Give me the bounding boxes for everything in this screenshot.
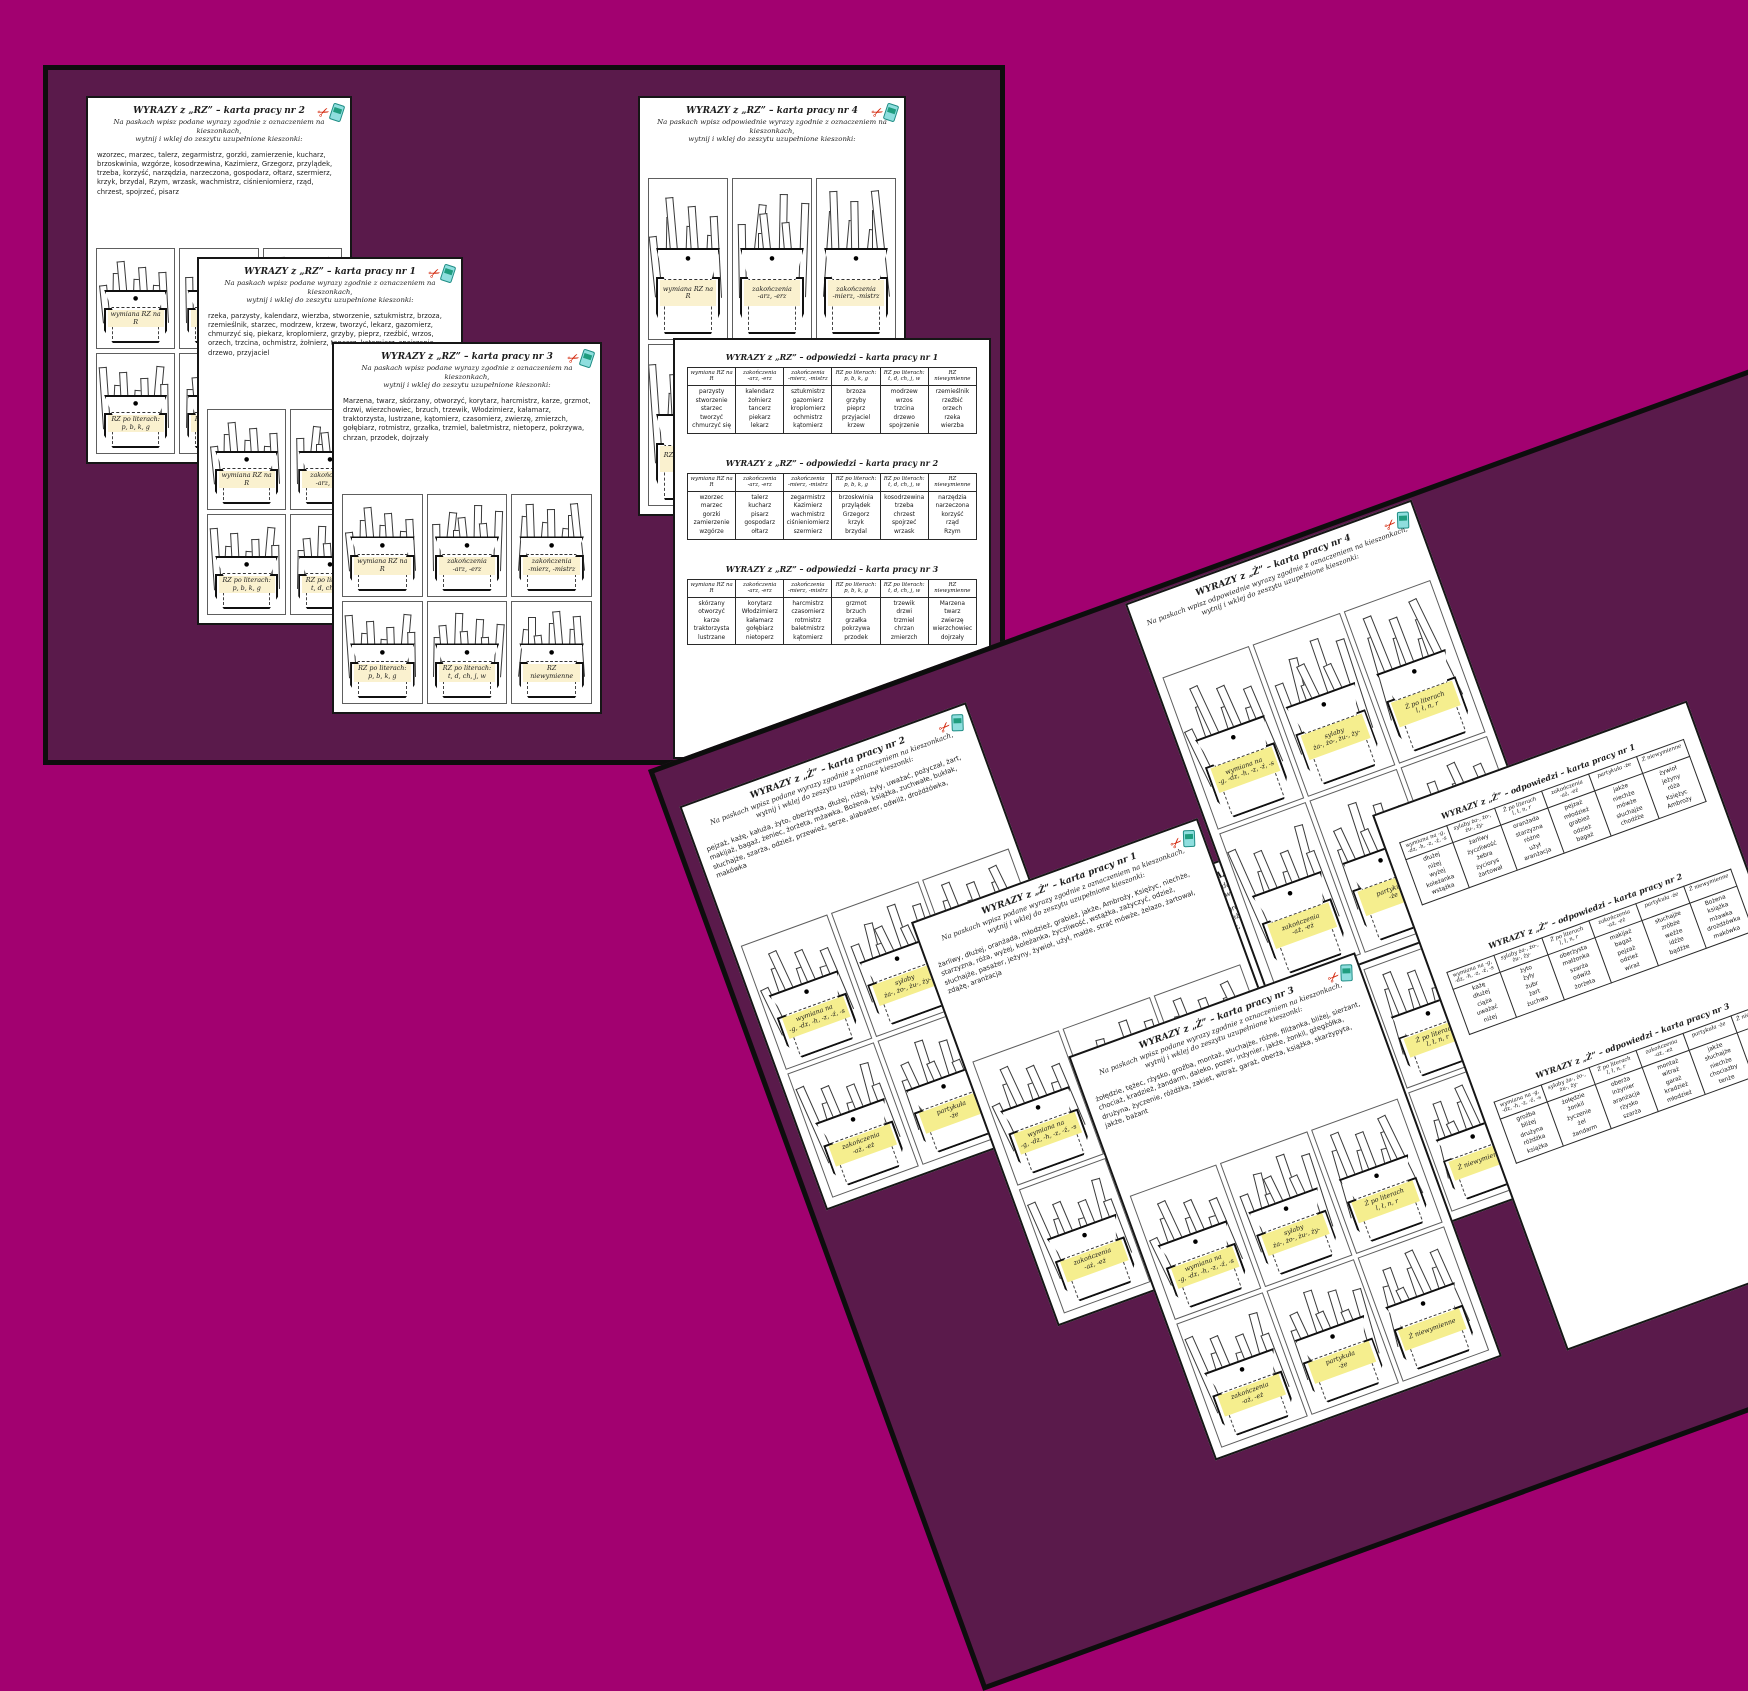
pocket-flap (824, 248, 888, 284)
pocket-flap (519, 643, 584, 666)
pocket: RZ niewymienne (519, 643, 584, 698)
pocket-label: RZ po literach: p, b, k, g (219, 576, 275, 593)
answers-table-wrap: wymiana RZ na Rzakończenia -arz, -erzzak… (687, 367, 977, 434)
worksheet-instructions: Na paskach wpisz podane wyrazy zgodnie z… (343, 364, 591, 390)
pocket-cell: wymiana RZ na R (648, 178, 728, 340)
pocket: zakończenia -arz, -erz (435, 536, 500, 591)
pocket: zakończenia -arz, -erz (740, 248, 804, 334)
pocket-label: RZ po literach: p, b, k, g (354, 664, 411, 681)
answers-col-header: RZ niewymienne (928, 579, 976, 597)
worksheet-instructions: Na paskach wpisz odpowiednie wyrazy zgod… (649, 118, 895, 144)
pocket-label: zakończenia -mierz, -mistrz (828, 280, 884, 306)
answers-col-values: parzysty stworzenie starzec tworzyć chmu… (688, 385, 736, 433)
answers-col-header: RZ po literach: t, d, ch, j, w (880, 579, 928, 597)
answers-col-values: harcmistrz czasomierz rotmistrz baletmis… (784, 597, 832, 645)
pocket-cell: wymiana RZ na R (96, 248, 175, 349)
pocket-flap (656, 248, 720, 284)
answers-col-header: wymiana RZ na R (688, 368, 736, 386)
answers-col-header: zakończenia -arz, -erz (736, 579, 784, 597)
answers-col-values: grzmot brzuch grzałka pokrzywa przodek (832, 597, 880, 645)
glue-icon (440, 264, 457, 284)
answers-col-header: RZ po literach: p, b, k, g (832, 473, 880, 491)
pocket-flap (519, 536, 584, 559)
scissors-glue-icon: ✂ (872, 103, 898, 125)
pocket-flap (435, 536, 500, 559)
pocket-cell: RZ po literach: t, d, ch, j, w (427, 601, 508, 704)
answers-col-values: kalendarz żołnierz tancerz piekarz lekar… (736, 385, 784, 433)
answers-col-values: korytarz Włodzimierz kałamarz gołębiarz … (736, 597, 784, 645)
answers-col-header: zakończenia -mierz, -mistrz (784, 368, 832, 386)
glue-icon (1340, 964, 1353, 981)
pocket-flap (740, 248, 804, 284)
answers-col-values: talerz kucharz pisarz gospodarz ołtarz (736, 491, 784, 539)
scissors-glue-icon: ✂ (429, 264, 455, 286)
answers-col-values: skórzany otworzyć karze traktorzysta lus… (688, 597, 736, 645)
answers-col-values: brzoza grzyby pieprz przyjaciel krzew (832, 385, 880, 433)
word-list: Marzena, twarz, skórzany, otworzyć, kory… (343, 397, 591, 443)
pocket: wymiana RZ na R (104, 290, 167, 343)
pocket-flap (350, 536, 415, 559)
pocket-flap (215, 451, 278, 473)
pocket-cell: RZ po literach: p, b, k, g (96, 353, 175, 454)
answers-col-header: RZ po literach: t, d, ch, j, w (880, 473, 928, 491)
pocket-cell: zakończenia -arz, -erz (427, 494, 508, 597)
pocket-label: wymiana RZ na R (108, 310, 164, 327)
answers-col-header: zakończenia -mierz, -mistrz (784, 579, 832, 597)
pocket-grid: wymiana RZ na Rzakończenia -arz, -erzzak… (342, 494, 592, 704)
glue-icon (329, 103, 346, 123)
pocket-flap (104, 395, 167, 417)
answers-col-header: RZ niewymienne (928, 473, 976, 491)
answers-col-header: RZ niewymienne (928, 368, 976, 386)
pocket-label: zakończenia -arz, -erz (744, 280, 800, 306)
answers-col-header: zakończenia -arz, -erz (736, 368, 784, 386)
pocket: zakończenia -mierz, -mistrz (824, 248, 888, 334)
pocket-label: zakończenia -mierz, -mistrz (523, 557, 580, 574)
answers-col-header: zakończenia -mierz, -mistrz (784, 473, 832, 491)
answers-col-values: narzędzia narzeczona korzyść rząd Rzym (928, 491, 976, 539)
board-rz-worksheets: ✂ WYRAZY z „RZ” – karta pracy nr 2 Na pa… (43, 65, 1005, 765)
scissors-glue-icon: ✂ (568, 349, 594, 371)
answers-col-header: wymiana RZ na R (688, 579, 736, 597)
pocket-flap (104, 290, 167, 312)
pocket-flap (435, 643, 500, 666)
answers-col-header: zakończenia -arz, -erz (736, 473, 784, 491)
scissors-glue-icon: ✂ (318, 103, 344, 125)
pocket-cell: RZ niewymienne (511, 601, 592, 704)
answers-col-values: sztukmistrz gazomierz kroplomierz ochmis… (784, 385, 832, 433)
answers-col-header: RZ po literach: t, d, ch, j, w (880, 368, 928, 386)
pocket: RZ po literach: p, b, k, g (350, 643, 415, 698)
pocket: wymiana RZ na R (215, 451, 278, 504)
answers-col-values: modrzew wrzos trzcina drzewo spojrzenie (880, 385, 928, 433)
worksheet-title: WYRAZY z „RZ” – karta pracy nr 1 (208, 267, 452, 277)
answers-table: wymiana RZ na Rzakończenia -arz, -erzzak… (687, 579, 977, 646)
glue-icon (1397, 511, 1410, 528)
pocket-label: RZ niewymienne (523, 664, 580, 681)
pocket: RZ po literach: p, b, k, g (104, 395, 167, 448)
glue-icon (883, 103, 900, 123)
word-list: wzorzec, marzec, talerz, zegarmistrz, go… (97, 151, 341, 197)
pocket: RZ po literach: t, d, ch, j, w (435, 643, 500, 698)
pocket-cell: RZ po literach: p, b, k, g (207, 514, 286, 615)
answers-table-wrap: wymiana RZ na Rzakończenia -arz, -erzzak… (687, 473, 977, 540)
answers-title: WYRAZY z „RZ” – odpowiedzi – karta pracy… (687, 564, 977, 574)
worksheet-title: WYRAZY z „RZ” – karta pracy nr 2 (97, 106, 341, 116)
answers-col-values: wzorzec marzec gorzki zamierzenie wzgórz… (688, 491, 736, 539)
pocket-flap (350, 643, 415, 666)
pocket-label: wymiana RZ na R (219, 471, 275, 488)
worksheet-instructions: Na paskach wpisz podane wyrazy zgodnie z… (208, 279, 452, 305)
pocket: zakończenia -mierz, -mistrz (519, 536, 584, 591)
answers-col-header: RZ po literach: p, b, k, g (832, 368, 880, 386)
answers-col-values: Marzena twarz zwierzę wierzchowiec dojrz… (928, 597, 976, 645)
pocket-flap (215, 556, 278, 578)
pocket-cell: zakończenia -arz, -erz (732, 178, 812, 340)
answers-block: WYRAZY z „RZ” – odpowiedzi – karta pracy… (687, 564, 977, 646)
answers-table: wymiana RZ na Rzakończenia -arz, -erzzak… (687, 473, 977, 540)
answers-col-header: RZ po literach: p, b, k, g (832, 579, 880, 597)
answers-block: WYRAZY z „RZ” – odpowiedzi – karta pracy… (687, 458, 977, 540)
answers-table: wymiana RZ na Rzakończenia -arz, -erzzak… (687, 367, 977, 434)
pocket-label: wymiana RZ na R (354, 557, 411, 574)
worksheet-instructions: Na paskach wpisz podane wyrazy zgodnie z… (97, 118, 341, 144)
answers-title: WYRAZY z „RZ” – odpowiedzi – karta pracy… (687, 458, 977, 468)
worksheet-rz-3: ✂ WYRAZY z „RZ” – karta pracy nr 3 Na pa… (332, 342, 602, 714)
answers-col-values: brzoskwinia przylądek Grzegorz krzyk brz… (832, 491, 880, 539)
answers-block: WYRAZY z „RZ” – odpowiedzi – karta pracy… (687, 352, 977, 434)
answers-col-header: wymiana RZ na R (688, 473, 736, 491)
pocket-label: RZ po literach: p, b, k, g (108, 415, 164, 432)
pocket-cell: zakończenia -mierz, -mistrz (816, 178, 896, 340)
pocket-label: RZ po literach: t, d, ch, j, w (439, 664, 496, 681)
pocket-cell: RZ po literach: p, b, k, g (342, 601, 423, 704)
worksheet-title: WYRAZY z „RZ” – karta pracy nr 4 (649, 106, 895, 116)
pocket: wymiana RZ na R (350, 536, 415, 591)
pocket-cell: wymiana RZ na R (342, 494, 423, 597)
pocket-label: wymiana RZ na R (660, 280, 716, 306)
pocket-label: zakończenia -arz, -erz (439, 557, 496, 574)
answers-title: WYRAZY z „RZ” – odpowiedzi – karta pracy… (687, 352, 977, 362)
pocket-cell: wymiana RZ na R (207, 409, 286, 510)
pocket-cell: zakończenia -mierz, -mistrz (511, 494, 592, 597)
pocket: wymiana RZ na R (656, 248, 720, 334)
answers-table-wrap: wymiana RZ na Rzakończenia -arz, -erzzak… (687, 579, 977, 646)
glue-icon (579, 349, 596, 369)
answers-col-values: trzewik drzwi trzmiel chrzan zmierzch (880, 597, 928, 645)
answers-col-values: kosodrzewina trzeba chrzest spojrzeć wrz… (880, 491, 928, 539)
glue-icon (951, 714, 964, 731)
answers-col-values: zegarmistrz Kazimierz wachmistrz ciśnien… (784, 491, 832, 539)
pocket: RZ po literach: p, b, k, g (215, 556, 278, 609)
glue-icon (1183, 830, 1196, 847)
answers-col-values: rzemieślnik rzeźbić orzech rzeka wierzba (928, 385, 976, 433)
worksheet-title: WYRAZY z „RZ” – karta pracy nr 3 (343, 352, 591, 362)
